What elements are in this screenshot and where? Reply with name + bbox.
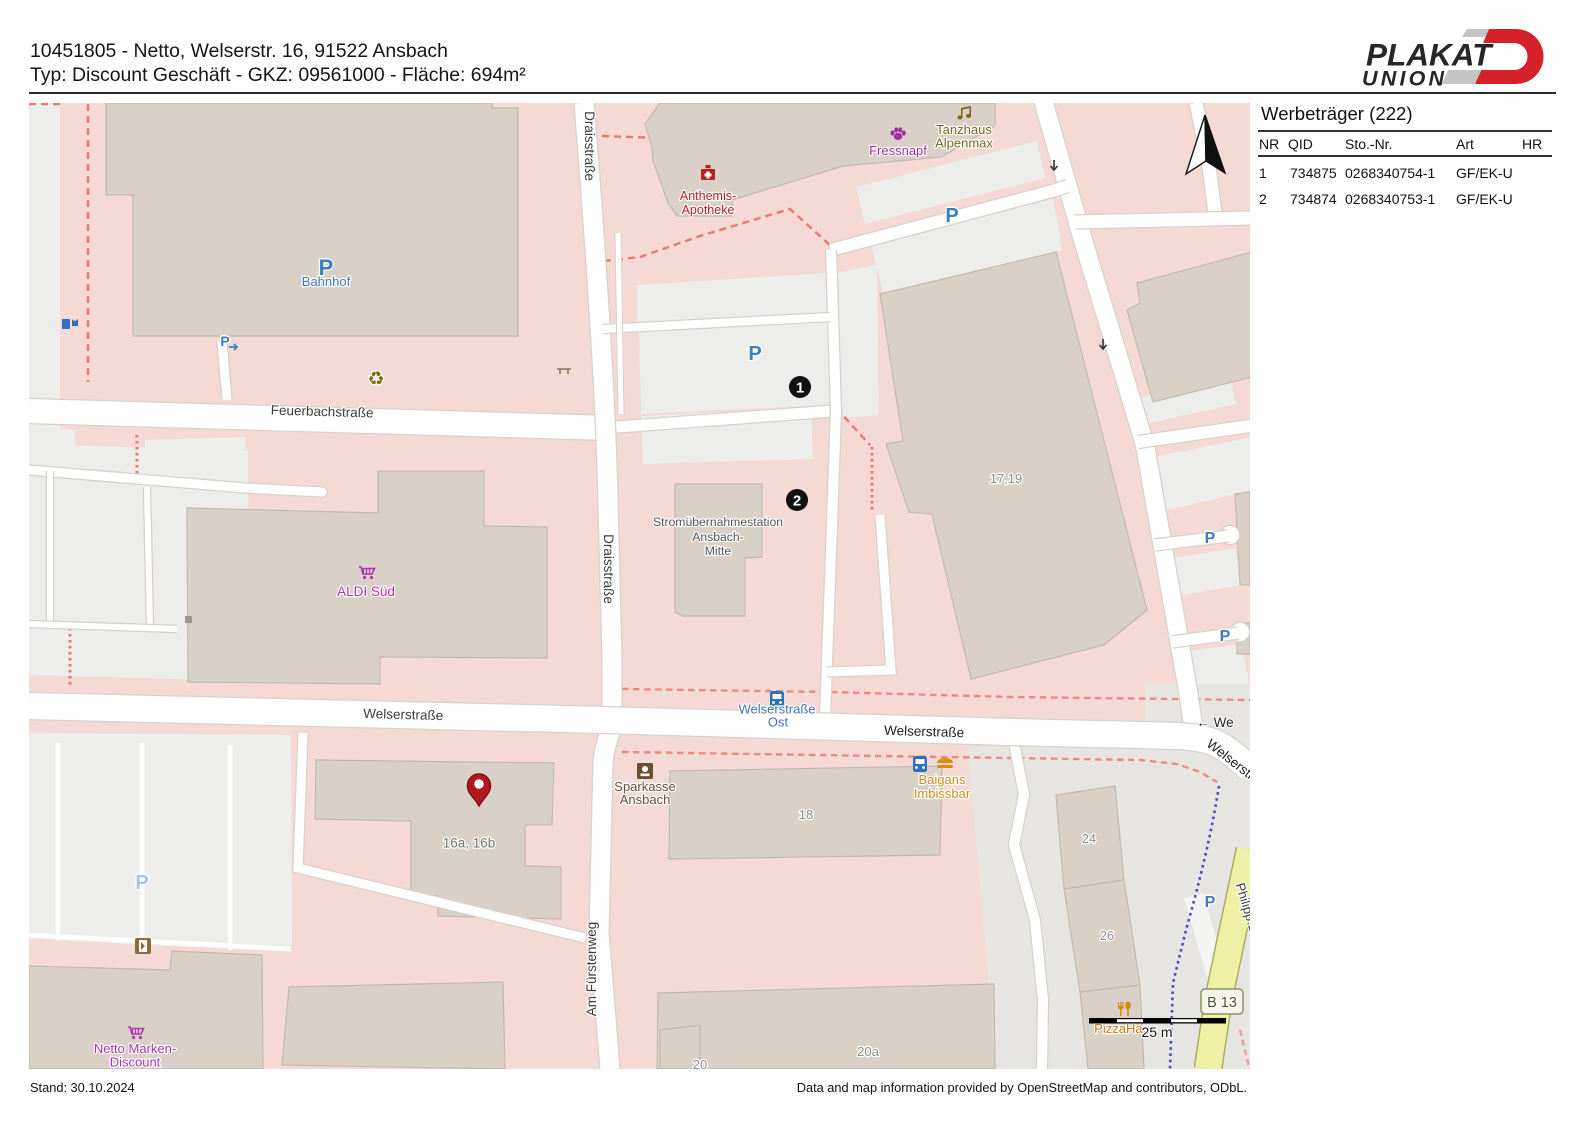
- svg-text:Alpenmax: Alpenmax: [935, 136, 993, 151]
- svg-text:Anthemis-: Anthemis-: [680, 189, 736, 203]
- svg-text:P: P: [748, 343, 761, 365]
- svg-text:17,19: 17,19: [990, 471, 1023, 486]
- svg-text:Welserstraße: Welserstraße: [363, 706, 443, 723]
- svg-text:Apotheke: Apotheke: [682, 203, 735, 217]
- svg-text:16a, 16b: 16a, 16b: [443, 836, 496, 851]
- svg-text:B 13: B 13: [1207, 995, 1237, 1011]
- svg-text:20a: 20a: [857, 1044, 879, 1059]
- svg-text:P: P: [135, 872, 148, 894]
- svg-text:Welserstraße: Welserstraße: [884, 723, 964, 741]
- svg-text:Imbissbar: Imbissbar: [914, 786, 971, 801]
- svg-text:P: P: [1220, 628, 1231, 645]
- svg-text:18: 18: [799, 807, 813, 822]
- svg-text:Mitte: Mitte: [705, 544, 732, 558]
- svg-text:Baigans: Baigans: [919, 772, 966, 787]
- svg-text:Fressnapf: Fressnapf: [869, 143, 927, 158]
- svg-text:Draisstraße: Draisstraße: [582, 111, 597, 181]
- svg-text:Ost: Ost: [768, 715, 789, 730]
- svg-text:Ansbach: Ansbach: [620, 792, 671, 807]
- svg-text:Feuerbachstraße: Feuerbachstraße: [271, 402, 374, 420]
- svg-text:UNION: UNION: [1362, 67, 1447, 91]
- svg-text:P: P: [945, 205, 958, 227]
- svg-text:♻: ♻: [367, 369, 384, 390]
- svg-text:P: P: [1205, 894, 1216, 911]
- svg-text:2: 2: [793, 493, 801, 510]
- svg-text:Ansbach-: Ansbach-: [692, 530, 744, 544]
- svg-text:1: 1: [796, 380, 804, 397]
- svg-text:P: P: [1205, 530, 1216, 547]
- svg-text:Am Fürstenweg: Am Fürstenweg: [584, 922, 599, 1017]
- svg-text:20: 20: [693, 1057, 707, 1069]
- svg-text:26: 26: [1100, 929, 1114, 943]
- svg-text:P: P: [220, 333, 229, 349]
- svg-text:25 m: 25 m: [1141, 1024, 1172, 1040]
- svg-text:Stromübernahmestation: Stromübernahmestation: [653, 515, 783, 529]
- svg-text:24: 24: [1082, 832, 1096, 846]
- svg-text:Discount: Discount: [110, 1055, 161, 1070]
- svg-text:Bahnhof: Bahnhof: [302, 274, 351, 289]
- svg-text:← We: ← We: [1196, 715, 1233, 730]
- svg-text:Draisstraße: Draisstraße: [601, 534, 616, 604]
- svg-text:ALDI Süd: ALDI Süd: [337, 584, 395, 599]
